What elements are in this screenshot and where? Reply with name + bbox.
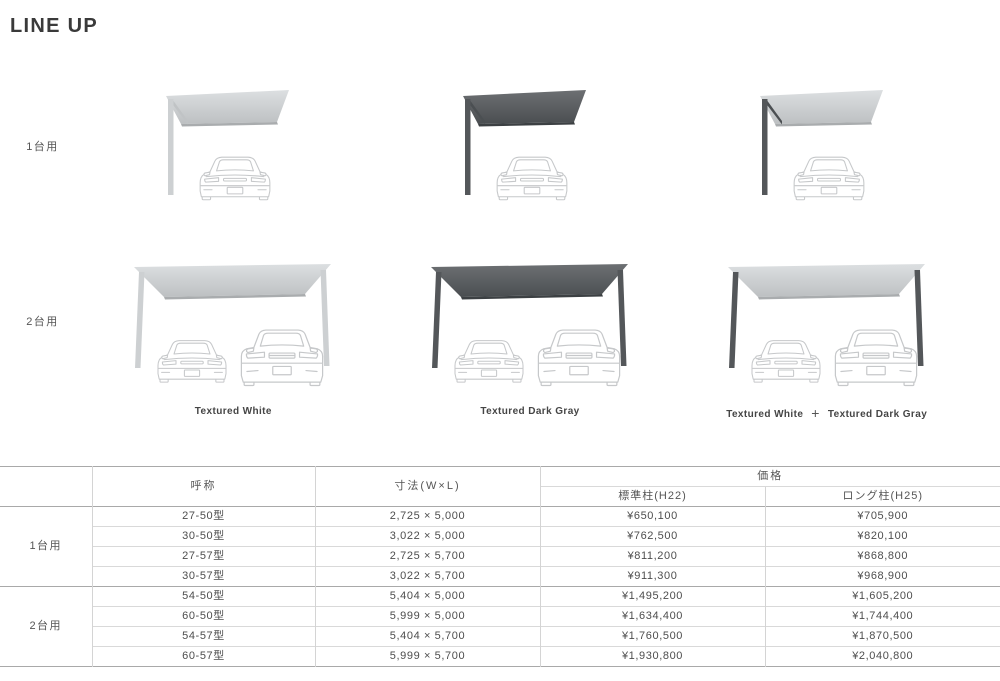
cell-size: 2,725 × 5,700 — [315, 547, 540, 567]
group-label-double: 2台用 — [0, 587, 92, 667]
carport-single-dark-illustration — [435, 83, 625, 208]
group-single: 1台用 27-50型 2,725 × 5,000 ¥650,100 ¥705,9… — [0, 507, 1000, 587]
cell-price-standard: ¥762,500 — [540, 527, 765, 547]
carport-single-mixed-illustration — [732, 83, 922, 208]
spec-table: 呼称 寸法(W×L) 価格 標準柱(H22) ロング柱(H25) 1台用 27-… — [0, 466, 1000, 667]
caption-label: Textured White — [726, 409, 803, 420]
cell-size: 5,999 × 5,000 — [315, 607, 540, 627]
lineup-row-single: 1台用 — [0, 83, 1000, 208]
cell-price-long: ¥820,100 — [765, 527, 1000, 547]
cell-name: 30-57型 — [92, 567, 315, 587]
page-title: LINE UP — [10, 14, 1000, 39]
caption-label: Textured Dark Gray — [480, 406, 579, 417]
caption-textured-mixed: Textured White + Textured Dark Gray — [726, 406, 927, 422]
cell-size: 5,404 × 5,700 — [315, 627, 540, 647]
plus-icon: + — [811, 405, 820, 421]
cell-price-long: ¥1,605,200 — [765, 587, 1000, 607]
cell-size: 2,725 × 5,000 — [315, 507, 540, 527]
caption-textured-white: Textured White — [195, 406, 272, 417]
cell-name: 27-57型 — [92, 547, 315, 567]
cell-price-long: ¥1,744,400 — [765, 607, 1000, 627]
table-row: 54-57型 5,404 × 5,700 ¥1,760,500 ¥1,870,5… — [0, 627, 1000, 647]
cell-name: 27-50型 — [92, 507, 315, 527]
header-size: 寸法(W×L) — [315, 467, 540, 507]
header-name: 呼称 — [92, 467, 315, 507]
cell-price-long: ¥2,040,800 — [765, 647, 1000, 667]
cell-name: 54-50型 — [92, 587, 315, 607]
cell-size: 5,404 × 5,000 — [315, 587, 540, 607]
cell-name: 60-50型 — [92, 607, 315, 627]
header-standard-post: 標準柱(H22) — [540, 487, 765, 507]
cell-price-long: ¥968,900 — [765, 567, 1000, 587]
cell-price-long: ¥705,900 — [765, 507, 1000, 527]
cell-price-standard: ¥1,930,800 — [540, 647, 765, 667]
corner-cell — [0, 467, 92, 507]
cell-name: 54-57型 — [92, 627, 315, 647]
cell-price-standard: ¥1,495,200 — [540, 587, 765, 607]
cell-name: 30-50型 — [92, 527, 315, 547]
caption-label: Textured White — [195, 406, 272, 417]
header-price: 価格 — [540, 467, 1000, 487]
table-row: 2台用 54-50型 5,404 × 5,000 ¥1,495,200 ¥1,6… — [0, 587, 1000, 607]
carport-double-dark-illustration — [405, 246, 655, 396]
caption-label: Textured Dark Gray — [828, 409, 927, 420]
cell-price-long: ¥1,870,500 — [765, 627, 1000, 647]
table-row: 30-57型 3,022 × 5,700 ¥911,300 ¥968,900 — [0, 567, 1000, 587]
cell-price-standard: ¥650,100 — [540, 507, 765, 527]
cell-size: 3,022 × 5,000 — [315, 527, 540, 547]
carport-single-white-illustration — [138, 83, 328, 208]
lineup-row-double: 2台用 — [0, 246, 1000, 396]
group-double: 2台用 54-50型 5,404 × 5,000 ¥1,495,200 ¥1,6… — [0, 587, 1000, 667]
table-row: 60-50型 5,999 × 5,000 ¥1,634,400 ¥1,744,4… — [0, 607, 1000, 627]
carport-double-white-illustration — [108, 246, 358, 396]
carport-double-mixed-illustration — [702, 246, 952, 396]
table-row: 30-50型 3,022 × 5,000 ¥762,500 ¥820,100 — [0, 527, 1000, 547]
cell-name: 60-57型 — [92, 647, 315, 667]
cell-price-standard: ¥911,300 — [540, 567, 765, 587]
cell-price-standard: ¥1,634,400 — [540, 607, 765, 627]
caption-row: Textured White Textured Dark Gray Textur… — [0, 406, 1000, 422]
caption-textured-dark-gray: Textured Dark Gray — [480, 406, 579, 417]
row-label-double: 2台用 — [26, 313, 59, 329]
group-label-single: 1台用 — [0, 507, 92, 587]
row-label-single: 1台用 — [26, 138, 59, 154]
cell-price-standard: ¥1,760,500 — [540, 627, 765, 647]
table-row: 1台用 27-50型 2,725 × 5,000 ¥650,100 ¥705,9… — [0, 507, 1000, 527]
table-row: 27-57型 2,725 × 5,700 ¥811,200 ¥868,800 — [0, 547, 1000, 567]
cell-price-long: ¥868,800 — [765, 547, 1000, 567]
cell-size: 5,999 × 5,700 — [315, 647, 540, 667]
cell-price-standard: ¥811,200 — [540, 547, 765, 567]
cell-size: 3,022 × 5,700 — [315, 567, 540, 587]
header-long-post: ロング柱(H25) — [765, 487, 1000, 507]
table-row: 60-57型 5,999 × 5,700 ¥1,930,800 ¥2,040,8… — [0, 647, 1000, 667]
